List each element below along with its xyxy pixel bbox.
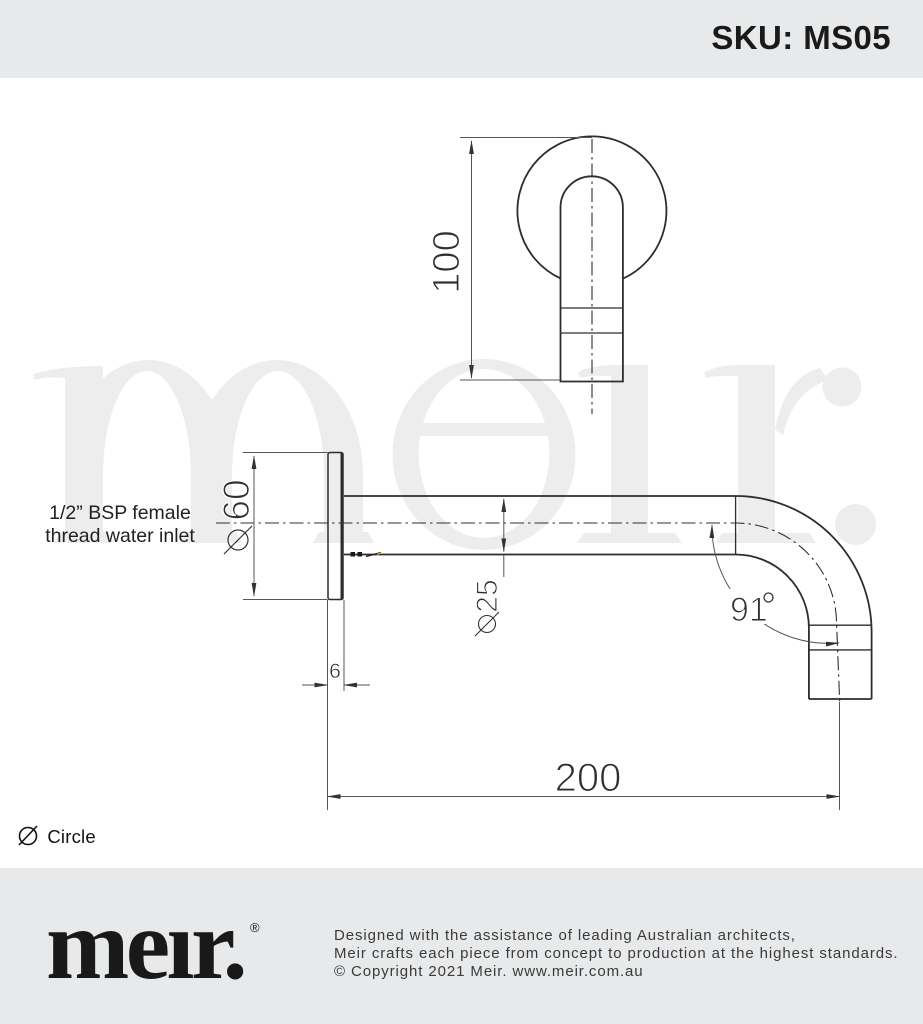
svg-text:100: 100 (426, 230, 468, 293)
svg-text:200: 200 (555, 756, 622, 800)
svg-text:25: 25 (471, 579, 504, 612)
svg-text:6: 6 (329, 660, 341, 683)
svg-text:60: 60 (216, 479, 257, 520)
svg-text:91: 91 (730, 591, 768, 629)
